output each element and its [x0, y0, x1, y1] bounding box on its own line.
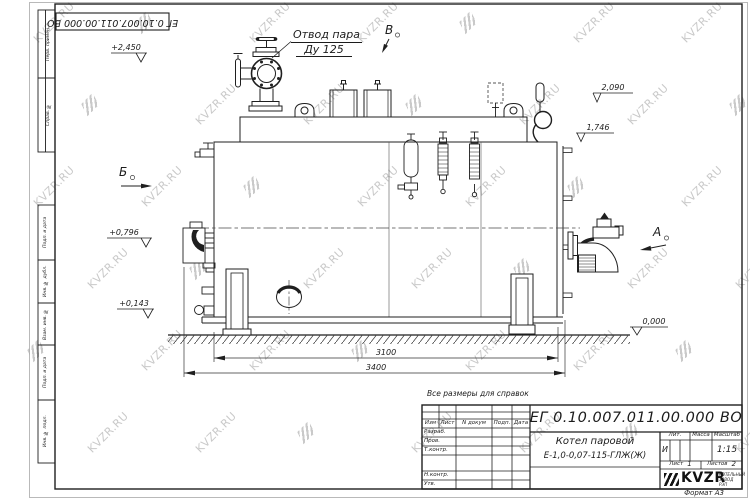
text-layer: ЕГ 0.10.007.011.00.000 ВО Перв. примен. … — [0, 0, 750, 500]
dim-3400: 3400 — [356, 364, 396, 373]
row-prov: Пров. — [424, 439, 440, 445]
row-utv: Утв. — [424, 482, 436, 488]
mass-header: Масса — [690, 433, 712, 440]
col-n-dokum: N докум — [456, 420, 492, 428]
top-stamp-doc-number: ЕГ 0.10.007.011.00.000 ВО — [47, 17, 178, 27]
scale-value: 1:15 — [712, 440, 742, 461]
lit-value: И — [660, 440, 670, 461]
sheet-label: Лист — [669, 462, 683, 468]
margin-label-sprav-no: Справ. № — [44, 78, 55, 152]
sheets-value: 2 — [732, 461, 736, 468]
level-2450: +2,450 — [106, 43, 146, 53]
margin-label-inv-podl: Инв. № подл. — [38, 400, 55, 463]
margin-label-perv-primen: Перв. примен. — [44, 10, 55, 78]
product-name-line1: Котел паровой — [532, 436, 658, 449]
col-izm: Изм — [422, 420, 439, 428]
sheets-label: Листов — [707, 462, 728, 468]
sheets-cell: Листов 2 — [701, 461, 742, 469]
level-0143: +0,143 — [114, 299, 154, 309]
row-razrab: Разраб. — [424, 430, 446, 436]
logo-caption-line2: ЗАВОД РЭП — [719, 478, 741, 488]
margin-label-inv-dubl: Инв. № дубл. — [38, 260, 55, 303]
view-label-b: Б — [119, 166, 127, 179]
margin-label-podp-data-1: Подп. и дата — [38, 205, 55, 260]
level-2090: 2,090 — [595, 83, 631, 93]
title-doc-number: ЕГ 0.10.007.011.00.000 ВО — [532, 405, 740, 432]
view-label-a: А — [653, 226, 661, 239]
sheet-cell: Лист 1 — [660, 461, 701, 469]
level-1746: 1,746 — [580, 123, 616, 133]
steam-outlet-label-line1: Отвод пара — [291, 28, 362, 43]
margin-label-vzam-inv: Взам. инв. № — [38, 303, 55, 345]
row-nkontr: Н.контр. — [424, 473, 449, 479]
view-label-v: В — [385, 24, 393, 37]
sheet-value: 1 — [687, 461, 691, 468]
format-label: Формат А3 — [676, 490, 732, 499]
level-0000: 0,000 — [636, 317, 672, 327]
steam-outlet-label-line2: Ду 125 — [296, 43, 352, 57]
scale-header: Масштаб — [712, 433, 742, 440]
level-0796: +0,796 — [104, 228, 144, 238]
col-podp: Подп. — [492, 420, 512, 428]
dim-3100: 3100 — [366, 349, 406, 358]
lit-header: Лит. — [660, 433, 690, 440]
drawing-sheet: KVZR.RUKVZR.RUKVZR.RUKVZR.RUKVZR.RUKVZR.… — [0, 0, 750, 500]
col-data: Дата — [512, 420, 530, 428]
col-list: Лист — [439, 420, 456, 428]
product-name-line2: Е-1,0-0,07-115-ГЛЖ(Ж) — [532, 450, 658, 462]
reference-note: Все размеры для справок — [427, 390, 529, 398]
kvzr-logo-icon — [664, 473, 679, 486]
row-tkontr: Т.контр. — [424, 448, 448, 454]
top-stamp: ЕГ 0.10.007.011.00.000 ВО — [56, 13, 169, 30]
margin-label-podp-data-2: Подп. и дата — [38, 345, 55, 400]
kvzr-logo-caption: КОТЕЛЬНЫЙ ЗАВОД РЭП — [719, 473, 741, 487]
